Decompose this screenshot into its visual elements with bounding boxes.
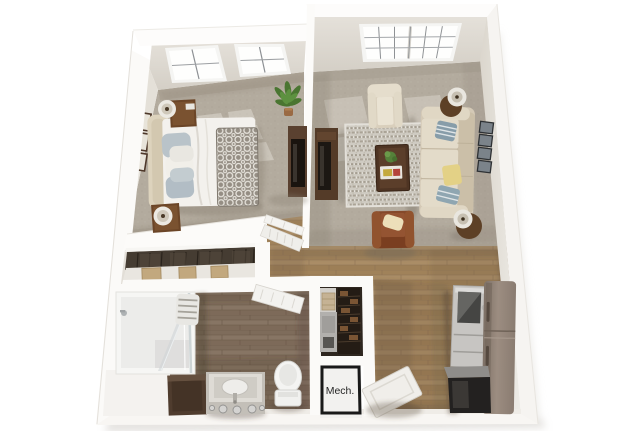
svg-text:Mech.: Mech. xyxy=(326,385,355,397)
